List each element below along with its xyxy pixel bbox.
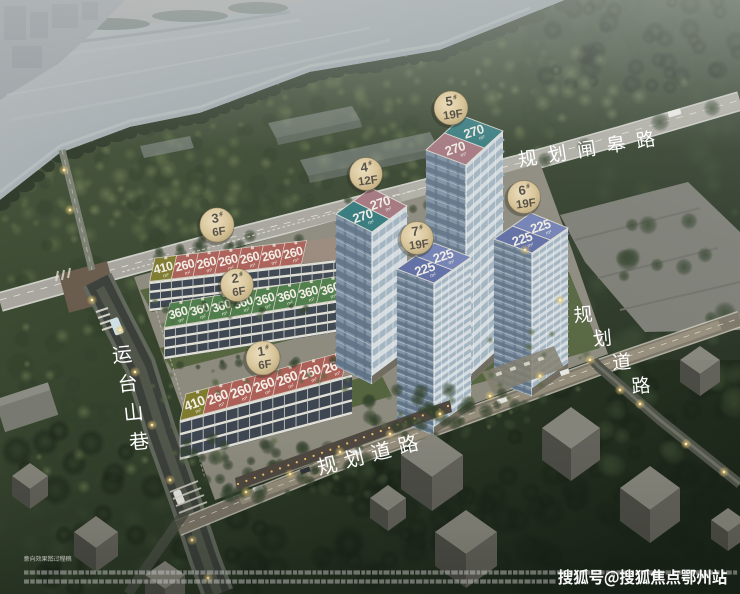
svg-text:6F: 6F — [232, 285, 247, 299]
svg-text:6F: 6F — [258, 358, 273, 372]
svg-text:6F: 6F — [212, 225, 227, 239]
